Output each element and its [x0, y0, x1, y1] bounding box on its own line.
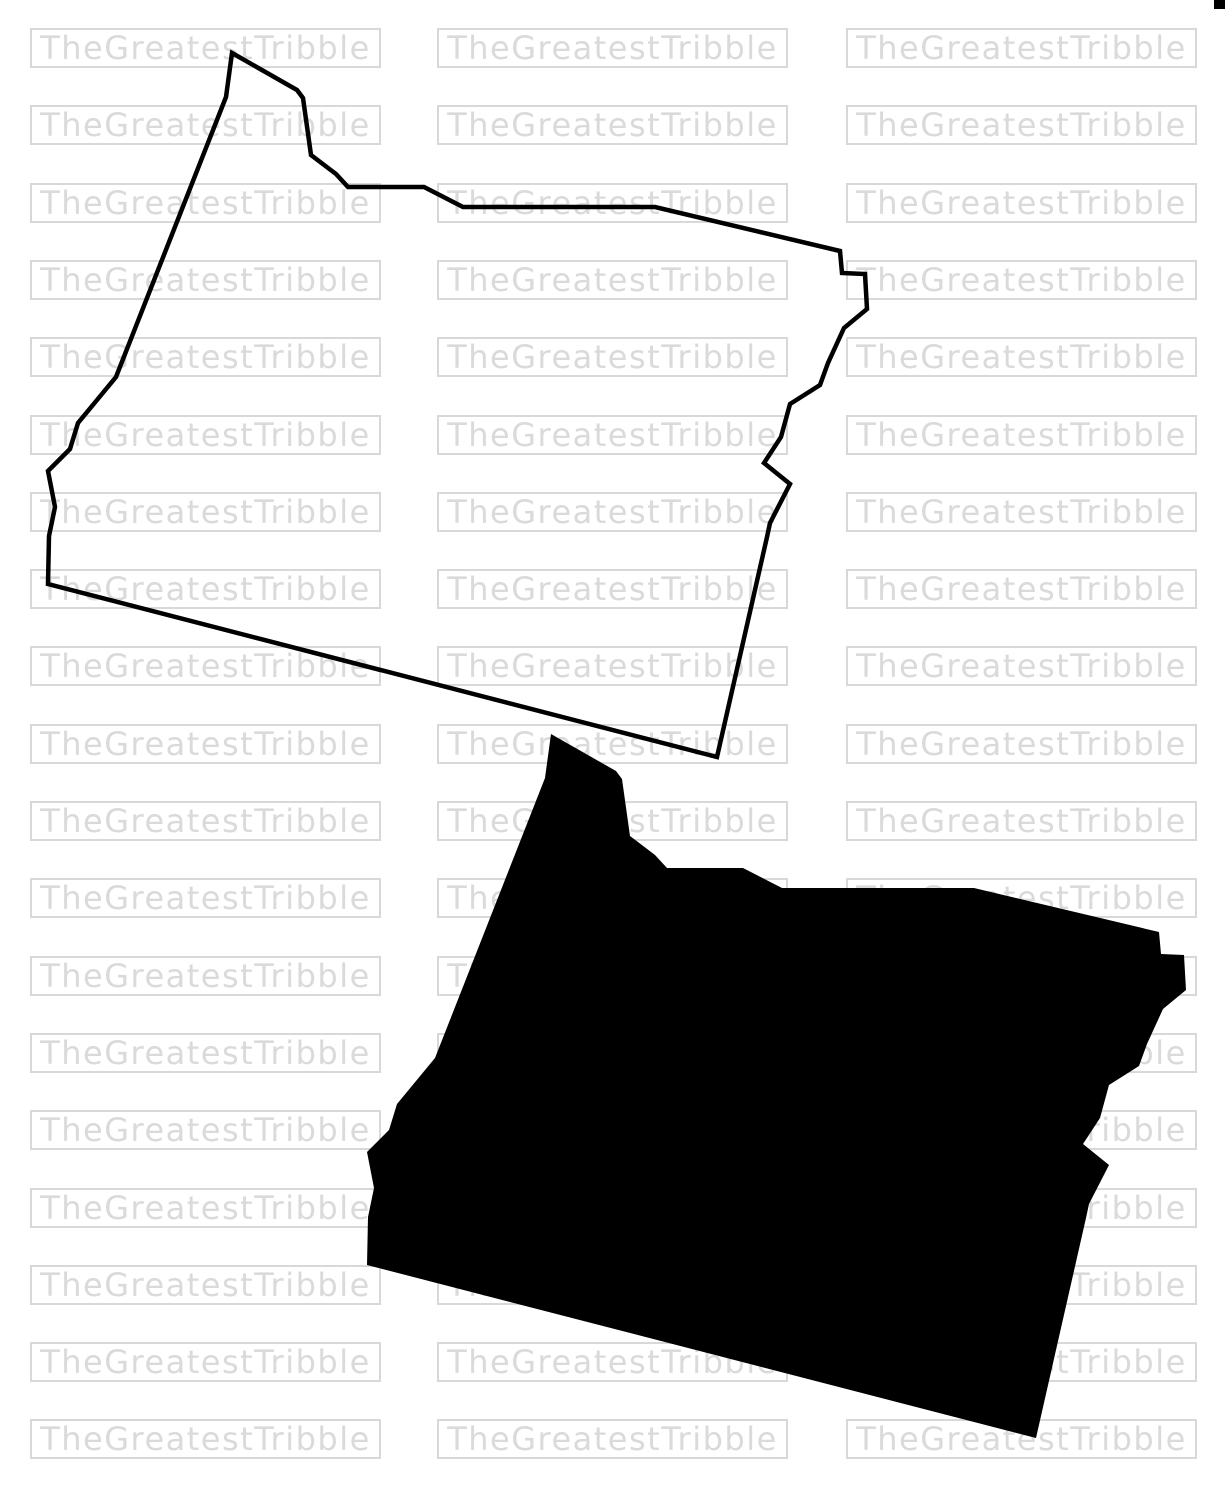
state-silhouette-map: [367, 734, 1186, 1438]
map-graphics: [0, 0, 1225, 1500]
corner-artifact-mark: [1214, 0, 1225, 9]
state-outline-map: [48, 53, 867, 757]
product-image-canvas: TheGreatestTribbleTheGreatestTribbleTheG…: [0, 0, 1225, 1500]
